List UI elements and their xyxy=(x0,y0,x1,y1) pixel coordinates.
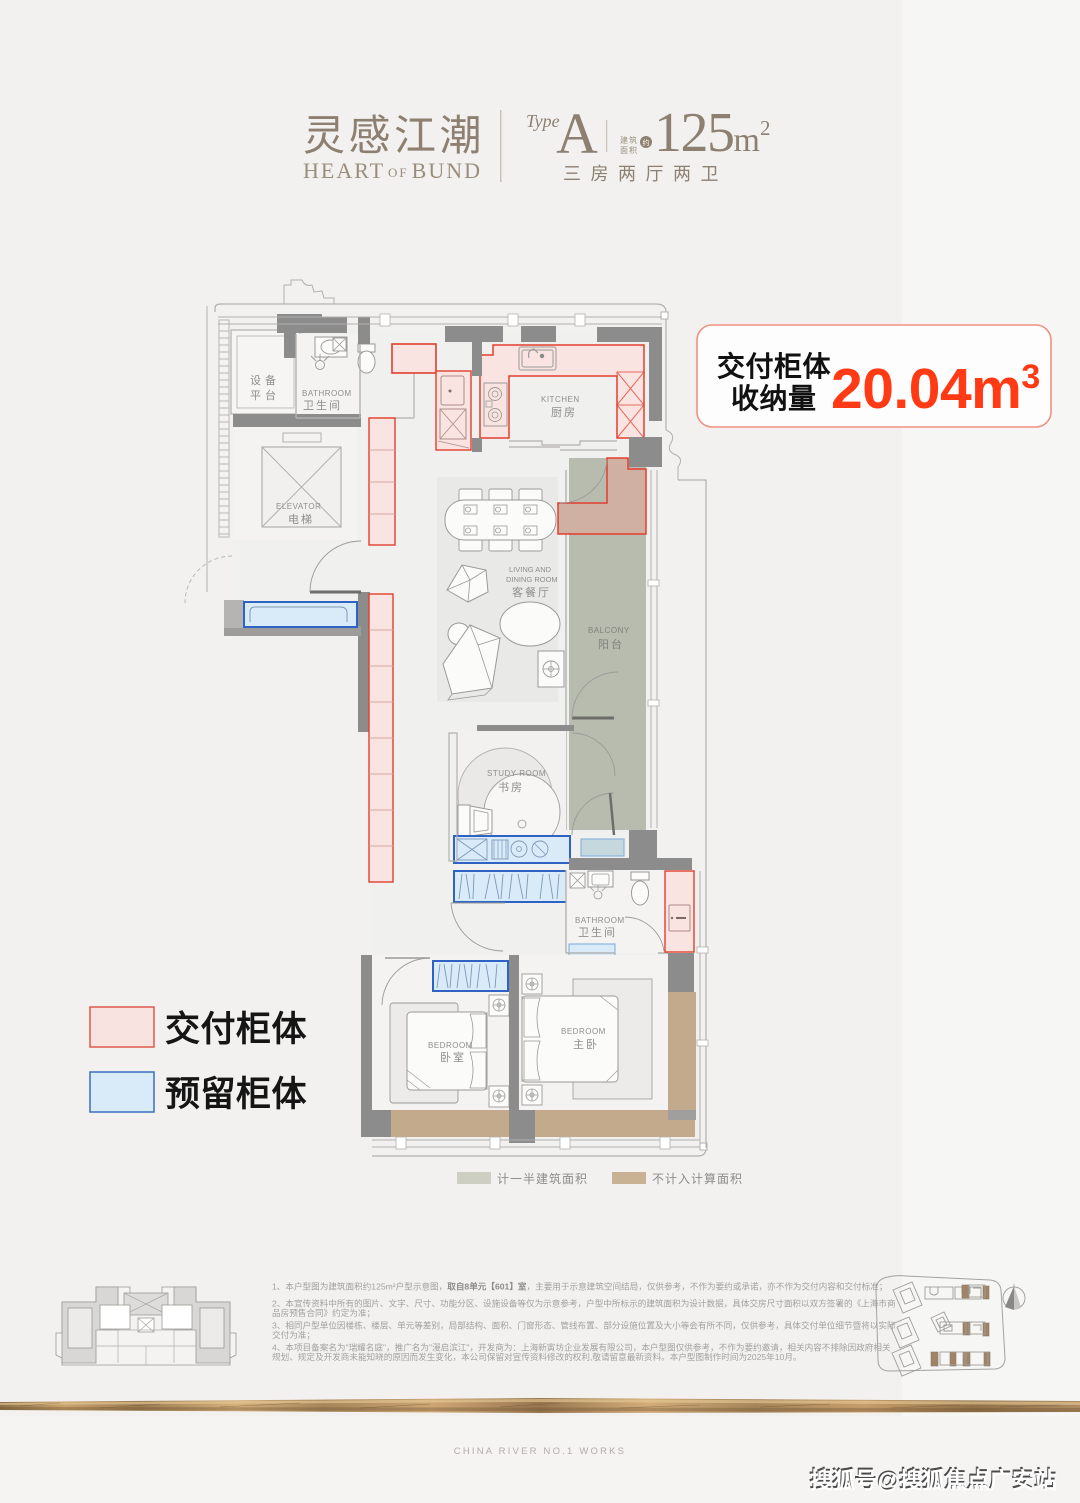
svg-text:Type: Type xyxy=(526,111,560,131)
svg-text:搜狐号@搜狐焦点广安站: 搜狐号@搜狐焦点广安站 xyxy=(810,1468,1057,1494)
svg-text:BEDROOM: BEDROOM xyxy=(428,1041,473,1050)
svg-text:2、本宣传资料中所有的图片、文字、尺寸、功能分区、设施设备等: 2、本宣传资料中所有的图片、文字、尺寸、功能分区、设施设备等仅为示意参考，户型中… xyxy=(272,1298,896,1309)
svg-text:不计入计算面积: 不计入计算面积 xyxy=(652,1171,743,1186)
svg-text:收纳量: 收纳量 xyxy=(731,382,817,414)
svg-text:LIVING AND: LIVING AND xyxy=(509,565,552,574)
svg-text:BATHROOM: BATHROOM xyxy=(302,389,352,398)
svg-text:主卧: 主卧 xyxy=(573,1038,599,1051)
svg-text:20.04m3: 20.04m3 xyxy=(831,357,1040,421)
svg-text:3、相同户型单位因楼栋、楼层、单元等差别，局部结构、面积、门: 3、相同户型单位因楼栋、楼层、单元等差别，局部结构、面积、门窗形态、管线布置、部… xyxy=(272,1320,896,1331)
svg-text:灵感江潮: 灵感江潮 xyxy=(303,114,485,160)
svg-text:预留柜体: 预留柜体 xyxy=(165,1075,307,1114)
svg-text:交付为准；: 交付为准； xyxy=(272,1329,315,1340)
svg-text:面积: 面积 xyxy=(620,145,638,155)
svg-text:电梯: 电梯 xyxy=(288,513,314,526)
svg-text:约: 约 xyxy=(643,138,650,147)
svg-text:1、本户型图为建筑面积约125m²户型示意图，取自8单元【6: 1、本户型图为建筑面积约125m²户型示意图，取自8单元【601】室，主要用于示… xyxy=(272,1281,887,1292)
svg-text:厨房: 厨房 xyxy=(551,406,577,419)
svg-text:三房两厅两卫: 三房两厅两卫 xyxy=(563,164,728,184)
svg-text:建筑: 建筑 xyxy=(620,135,638,145)
svg-text:BATHROOM: BATHROOM xyxy=(575,916,625,925)
svg-text:品房预售合同》约定为准；: 品房预售合同》约定为准； xyxy=(272,1307,375,1318)
svg-text:规划、规定及开发商未能知晓的原因而发生变化，本公司保留对宣传: 规划、规定及开发商未能知晓的原因而发生变化，本公司保留对宣传资料修改的权利,敬请… xyxy=(272,1351,802,1362)
svg-text:客餐厅: 客餐厅 xyxy=(512,585,551,599)
svg-text:BEDROOM: BEDROOM xyxy=(561,1027,606,1036)
svg-text:设备: 设备 xyxy=(250,373,280,387)
svg-text:ELEVATOR: ELEVATOR xyxy=(276,502,321,511)
svg-text:阳台: 阳台 xyxy=(598,637,624,651)
svg-text:平台: 平台 xyxy=(250,388,280,402)
svg-text:交付柜体: 交付柜体 xyxy=(717,350,832,382)
svg-text:BALCONY: BALCONY xyxy=(588,626,630,635)
svg-text:KITCHEN: KITCHEN xyxy=(541,395,580,404)
svg-text:4、本项目备案名为"瑞耀名庭"，推广名为"漫启滨江"，开发商: 4、本项目备案名为"瑞耀名庭"，推广名为"漫启滨江"，开发商为：上海新寅坊企业发… xyxy=(272,1342,891,1353)
svg-text:书房: 书房 xyxy=(498,781,524,794)
svg-text:DINING ROOM: DINING ROOM xyxy=(506,575,558,584)
svg-text:A: A xyxy=(556,101,598,166)
svg-text:STUDY ROOM: STUDY ROOM xyxy=(487,769,546,778)
svg-text:CHINA RIVER NO.1 WORKS: CHINA RIVER NO.1 WORKS xyxy=(454,1446,626,1457)
svg-text:卫生间: 卫生间 xyxy=(303,398,342,412)
svg-text:计一半建筑面积: 计一半建筑面积 xyxy=(497,1171,588,1186)
svg-text:交付柜体: 交付柜体 xyxy=(165,1009,307,1049)
svg-text:卫生间: 卫生间 xyxy=(578,925,617,939)
svg-text:卧室: 卧室 xyxy=(440,1050,466,1064)
